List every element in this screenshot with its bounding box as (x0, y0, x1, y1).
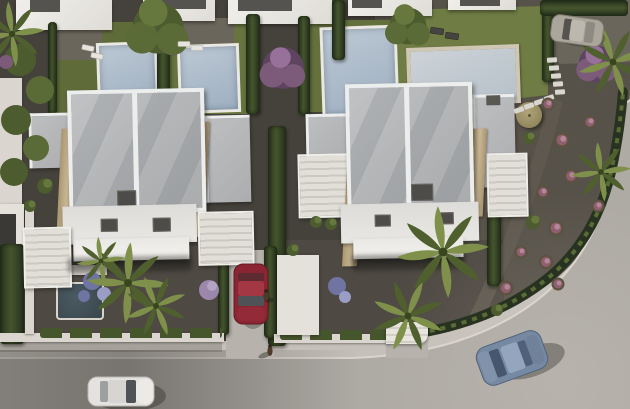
white-car (88, 377, 166, 409)
silver-car (549, 14, 608, 50)
green-tree (126, 0, 188, 55)
pink-flowering-shrubs (499, 98, 605, 296)
person-on-sidewalk (258, 344, 273, 360)
left-edge-vegetation (0, 2, 54, 186)
aerial-render (0, 0, 630, 409)
stepping-stone-path (513, 57, 565, 114)
purple-flowering-tree (260, 47, 306, 89)
detail-layer (0, 0, 630, 409)
blue-car (473, 321, 569, 393)
green-tree (385, 4, 430, 45)
